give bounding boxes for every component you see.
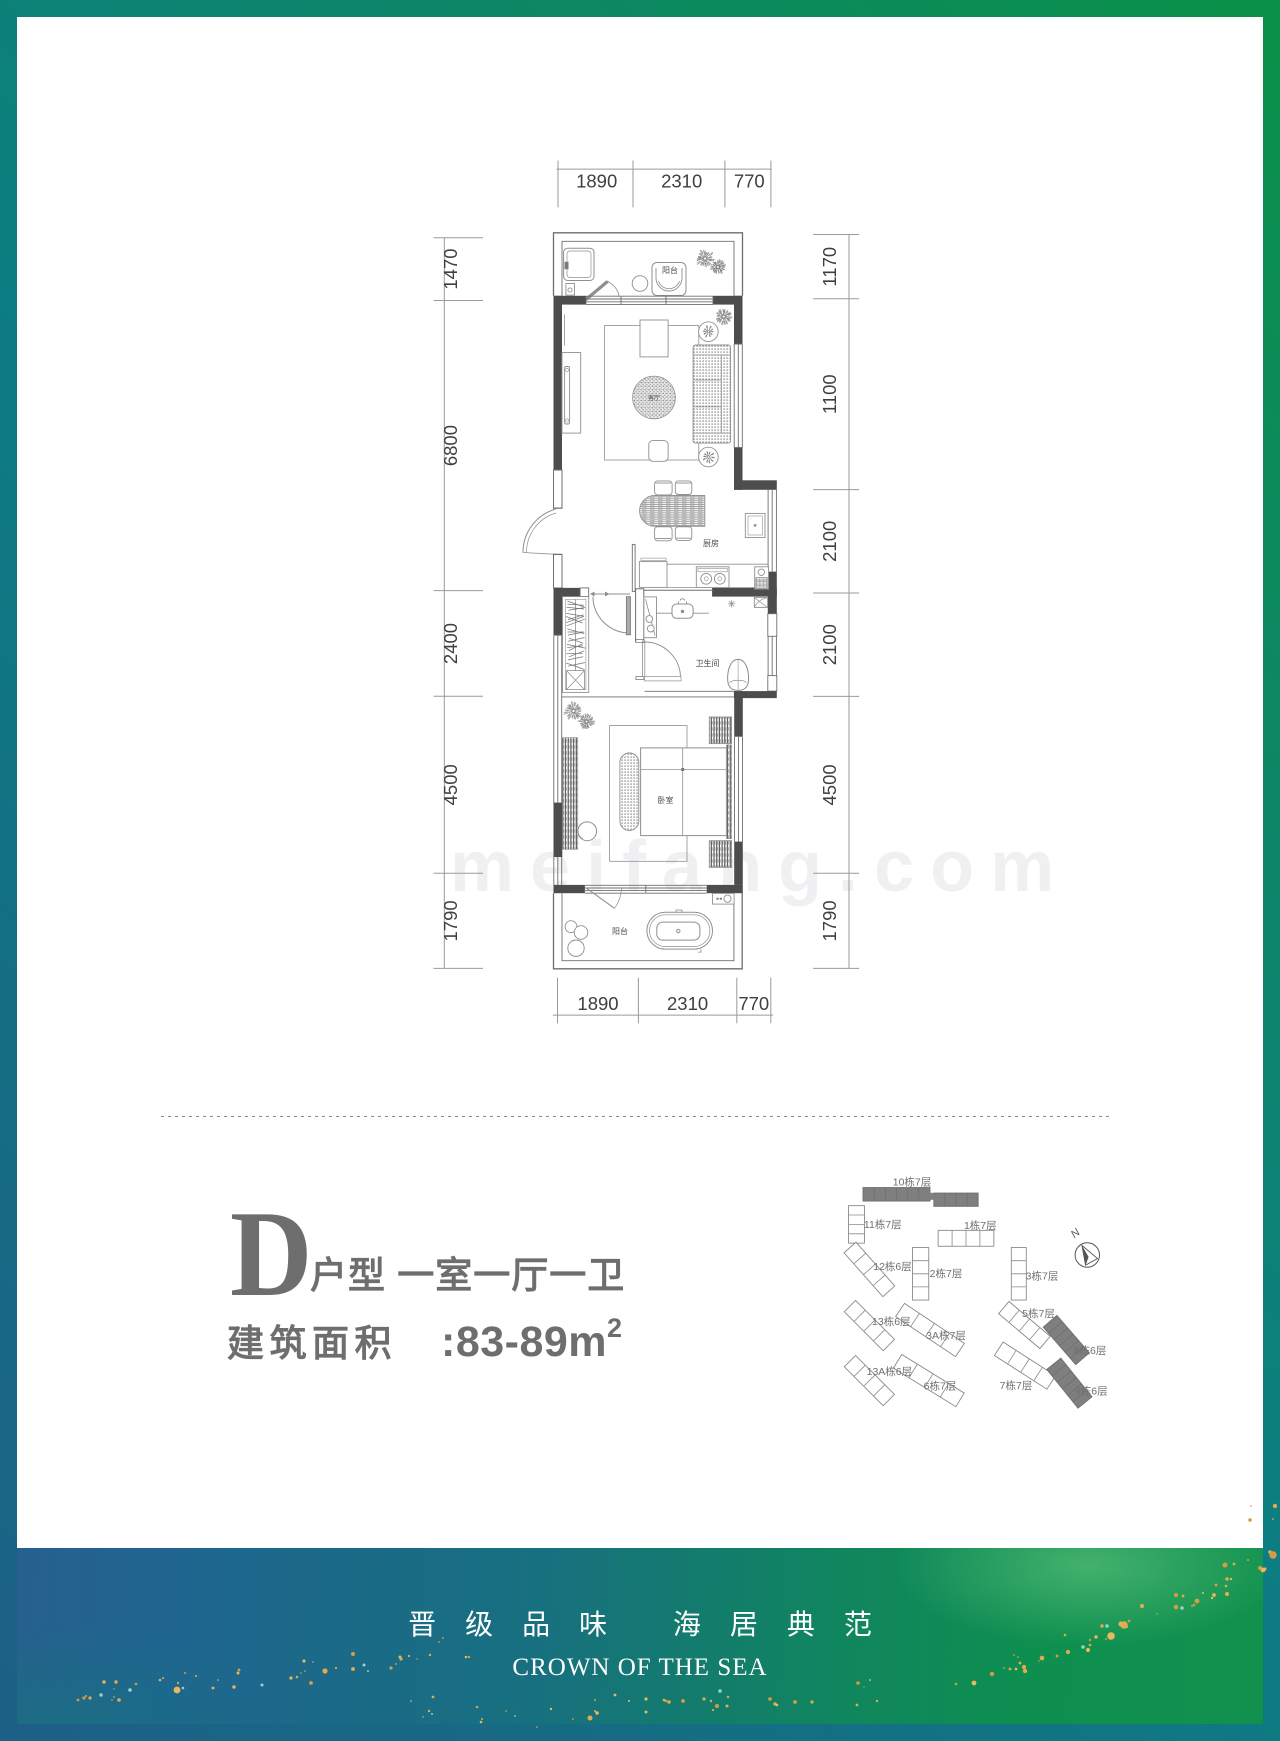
svg-text:13A栋6层: 13A栋6层 <box>867 1365 913 1378</box>
svg-text:厨房: 厨房 <box>703 538 719 548</box>
svg-text:2栋7层: 2栋7层 <box>930 1267 963 1280</box>
svg-text:4500: 4500 <box>819 764 840 805</box>
svg-text:12栋6层: 12栋6层 <box>873 1260 912 1273</box>
svg-text:11栋7层: 11栋7层 <box>864 1218 902 1231</box>
svg-text:770: 770 <box>734 171 765 192</box>
svg-text:2310: 2310 <box>667 993 708 1014</box>
svg-text:2310: 2310 <box>661 171 702 192</box>
svg-text:1790: 1790 <box>819 900 840 941</box>
svg-text:卫生间: 卫生间 <box>696 658 720 668</box>
svg-text:卧室: 卧室 <box>658 795 674 805</box>
svg-text:1890: 1890 <box>576 171 617 192</box>
svg-text:1890: 1890 <box>577 993 618 1014</box>
svg-text:3A栋7层: 3A栋7层 <box>926 1329 966 1342</box>
svg-text:3栋7层: 3栋7层 <box>1026 1270 1059 1283</box>
svg-text:1栋7层: 1栋7层 <box>964 1219 997 1232</box>
svg-text:1170: 1170 <box>819 247 840 287</box>
svg-text:5栋7层: 5栋7层 <box>1022 1307 1055 1320</box>
svg-text:6栋7层: 6栋7层 <box>924 1380 957 1393</box>
svg-text:10栋7层: 10栋7层 <box>893 1176 932 1189</box>
svg-text:8栋6层: 8栋6层 <box>1074 1344 1107 1357</box>
svg-text:1790: 1790 <box>440 900 461 941</box>
svg-text:1100: 1100 <box>819 374 840 414</box>
svg-text:7栋7层: 7栋7层 <box>1000 1379 1033 1392</box>
svg-text:1470: 1470 <box>440 249 461 290</box>
svg-text:770: 770 <box>738 993 769 1014</box>
svg-text:2100: 2100 <box>819 521 840 562</box>
svg-text:N: N <box>1069 1226 1083 1240</box>
svg-text:9栋6层: 9栋6层 <box>1075 1385 1108 1398</box>
svg-text:2400: 2400 <box>440 623 461 664</box>
svg-text:6800: 6800 <box>440 425 461 466</box>
svg-text:13栋6层: 13栋6层 <box>872 1315 911 1328</box>
svg-text:4500: 4500 <box>440 764 461 805</box>
svg-text:客厅: 客厅 <box>648 394 660 402</box>
svg-text:2100: 2100 <box>819 624 840 665</box>
svg-text:阳台: 阳台 <box>662 265 678 275</box>
svg-text:阳台: 阳台 <box>612 926 628 936</box>
